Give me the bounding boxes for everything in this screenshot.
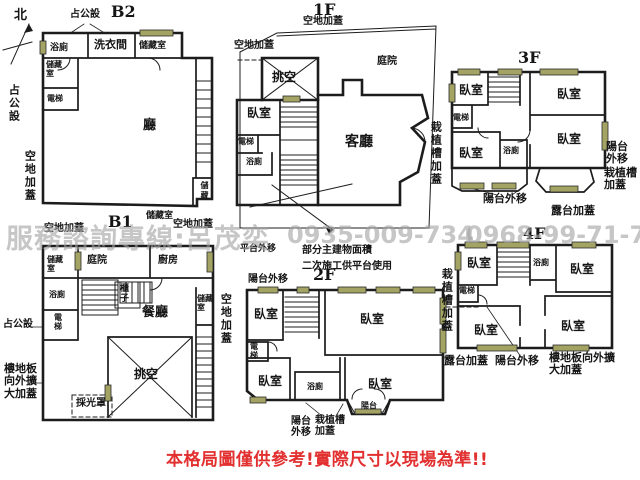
- b2-room-storage-corner-label: 儲藏: [199, 181, 208, 201]
- f3-outside-terrace-bottom-label: 露台加蓋: [551, 205, 595, 217]
- b1-room-cabinet-label: 櫃子: [120, 284, 131, 304]
- f4-room-elevator-label: 電梯: [459, 287, 475, 296]
- b1-room-kitchen-label: 廚房: [158, 255, 178, 266]
- b2-room-laundry-label: 洗衣間: [94, 39, 127, 51]
- f2-outside-balcony-top-label: 陽台外移: [248, 274, 288, 285]
- b1-title: B1: [108, 213, 133, 231]
- f1-outside-open-top-label: 空地加蓋: [303, 16, 343, 27]
- b2-room-elevator-label: 電梯: [47, 95, 63, 104]
- b2-room-storage-left-label: 儲藏室: [46, 61, 64, 79]
- f3-outside-balcony-right-label: 陽台外移: [606, 141, 630, 166]
- f4-title: 4F: [523, 225, 546, 243]
- f2-note-line1: 部分主建物面積: [302, 245, 372, 256]
- b1-outside-open-right-label: 空地加蓋: [219, 293, 231, 345]
- b1-room-storage-tl-label: 儲藏室: [47, 256, 65, 274]
- f4-room-bedroom-tl-label: 臥室: [467, 257, 491, 270]
- b1-room-dining-label: 餐廳: [142, 306, 168, 321]
- f2-room-bath-label: 浴廁: [307, 383, 323, 392]
- f1-outside-open-topleft-label: 空地加蓋: [234, 40, 274, 51]
- f1-room-elevator-label: 電梯: [238, 138, 254, 147]
- b1-room-yard-label: 庭院: [87, 255, 107, 266]
- north-compass-icon: [3, 24, 33, 64]
- f3-room-bedroom-tr-label: 臥室: [557, 88, 581, 101]
- b2-outside-storage-bottom-label: 儲藏室: [146, 211, 173, 221]
- b1-outside-open-top-label: 空地加蓋: [44, 223, 84, 234]
- f2-room-bedroom-bl-label: 臥室: [258, 375, 282, 388]
- f1-room-bedroom-label: 臥室: [247, 107, 271, 120]
- f1-room-yard-label: 庭院: [377, 56, 397, 67]
- b1-outside-public-left-label: 占公設: [3, 319, 33, 330]
- f3-outside-balcony-bottom-label: 陽台外移: [483, 193, 527, 205]
- floorplan-canvas: 北 B2 占公設 浴廁 洗衣間 儲藏室 儲藏室 電梯 廳 儲藏 占公設 空地加蓋…: [0, 0, 640, 480]
- f3-title: 3F: [518, 49, 541, 67]
- plan-1f-walls: [237, 26, 436, 234]
- b1-outside-expand-left-label: 樓地板向外擴大加蓋: [4, 363, 40, 400]
- disclaimer-text: 本格局圖僅供參考!實際尺寸以現場為準!!: [166, 445, 488, 470]
- f2-room-elevator-label: 電梯: [250, 343, 260, 361]
- b2-outside-open-bottom-label: 空地加蓋: [173, 219, 213, 230]
- f4-outside-planter-left-label: 栽植槽加蓋: [440, 268, 452, 333]
- f4-outside-balcony-bottom-label: 陽台外移: [495, 355, 539, 367]
- f4-room-bedroom-tr-label: 臥室: [570, 263, 594, 276]
- b1-room-void-label: 挑空: [134, 368, 158, 381]
- b1-room-skylight-label: 採光罩: [76, 398, 106, 409]
- f3-room-elevator-label: 電梯: [453, 114, 469, 123]
- f1-room-void-label: 挑空: [272, 71, 296, 84]
- b1-room-elevator-label: 電梯: [54, 314, 64, 332]
- f2-room-bedroom-tr-label: 臥室: [360, 313, 384, 326]
- b2-room-hall-label: 廳: [143, 119, 156, 134]
- b2-outside-open-left-label: 空地加蓋: [23, 150, 35, 202]
- f4-outside-expand-bottom-label: 樓地板向外擴大加蓋: [549, 352, 615, 377]
- f3-outside-planter-right-label: 栽植槽加蓋: [604, 167, 639, 192]
- f4-room-bath-label: 浴廁: [533, 259, 549, 268]
- f3-room-bedroom-mr-label: 臥室: [557, 133, 581, 146]
- f2-title: 2F: [313, 266, 336, 284]
- f2-outside-planter-bottom-label: 栽植槽加蓋: [315, 415, 348, 437]
- f3-outside-planter-left-label: 栽植槽加蓋: [429, 121, 441, 186]
- f2-room-bedroom-br-label: 臥室: [368, 378, 392, 391]
- f4-room-bedroom-bl-label: 臥室: [474, 324, 498, 337]
- f1-room-living-label: 客廳: [345, 135, 373, 151]
- b2-room-bath-label: 浴廁: [50, 43, 68, 53]
- f2-room-bedroom-tl-label: 臥室: [254, 308, 278, 321]
- b2-room-storage-top-label: 儲藏室: [139, 41, 166, 51]
- b2-note-public: 占公設: [70, 9, 100, 20]
- f3-room-bath-label: 浴廁: [503, 147, 519, 156]
- f1-room-bath-label: 浴廁: [246, 158, 262, 167]
- f3-room-bedroom-tl-label: 臥室: [459, 84, 483, 97]
- f2-outside-balcony-bottom-label: 陽台外移: [291, 416, 313, 438]
- f3-room-bedroom-bl-label: 臥室: [459, 147, 483, 160]
- b1-room-bath-label: 浴廁: [49, 291, 65, 300]
- compass-north-label: 北: [14, 9, 27, 24]
- f4-room-bedroom-br-label: 臥室: [561, 320, 585, 333]
- b2-title: B2: [111, 3, 136, 21]
- b2-outside-public-left-label: 占公設: [7, 84, 19, 123]
- f2-room-balcony-label: 陽台: [361, 402, 377, 411]
- f4-outside-terrace-bottom-label: 露台加蓋: [444, 355, 488, 367]
- b1-room-storage-right-label: 儲藏室: [197, 295, 215, 313]
- f2-note-platform: 平台外移: [240, 244, 276, 254]
